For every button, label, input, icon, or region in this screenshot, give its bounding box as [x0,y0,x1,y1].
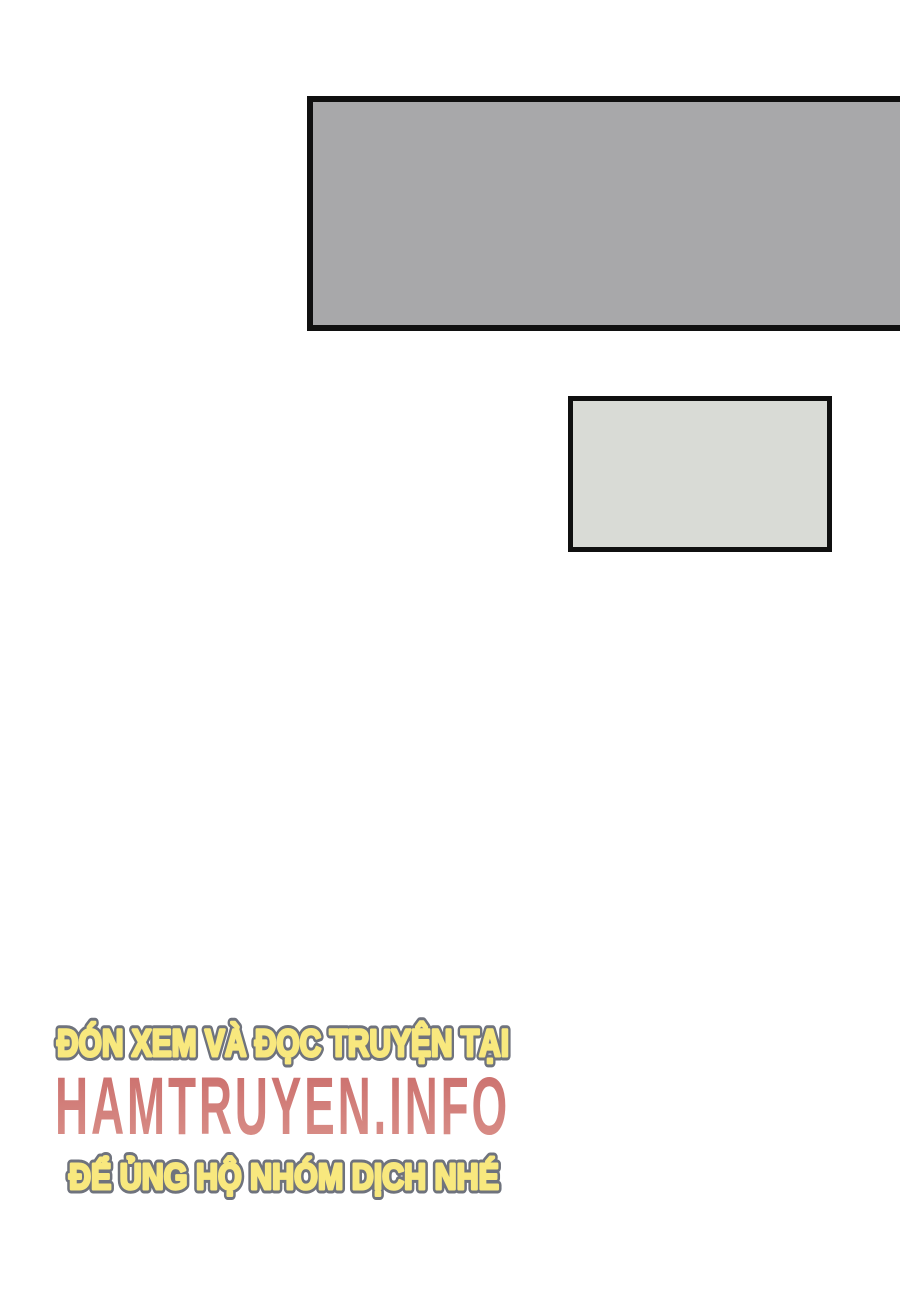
svg-text:ĐÓN XEM VÀ ĐỌC TRUYỆN TẠI: ĐÓN XEM VÀ ĐỌC TRUYỆN TẠI [57,1021,509,1065]
svg-text:HAMTRUYEN.INFO: HAMTRUYEN.INFO [55,1061,510,1152]
svg-text:ĐỂ ỦNG HỘ NHÓM DỊCH NHÉ: ĐỂ ỦNG HỘ NHÓM DỊCH NHÉ [69,1155,499,1197]
